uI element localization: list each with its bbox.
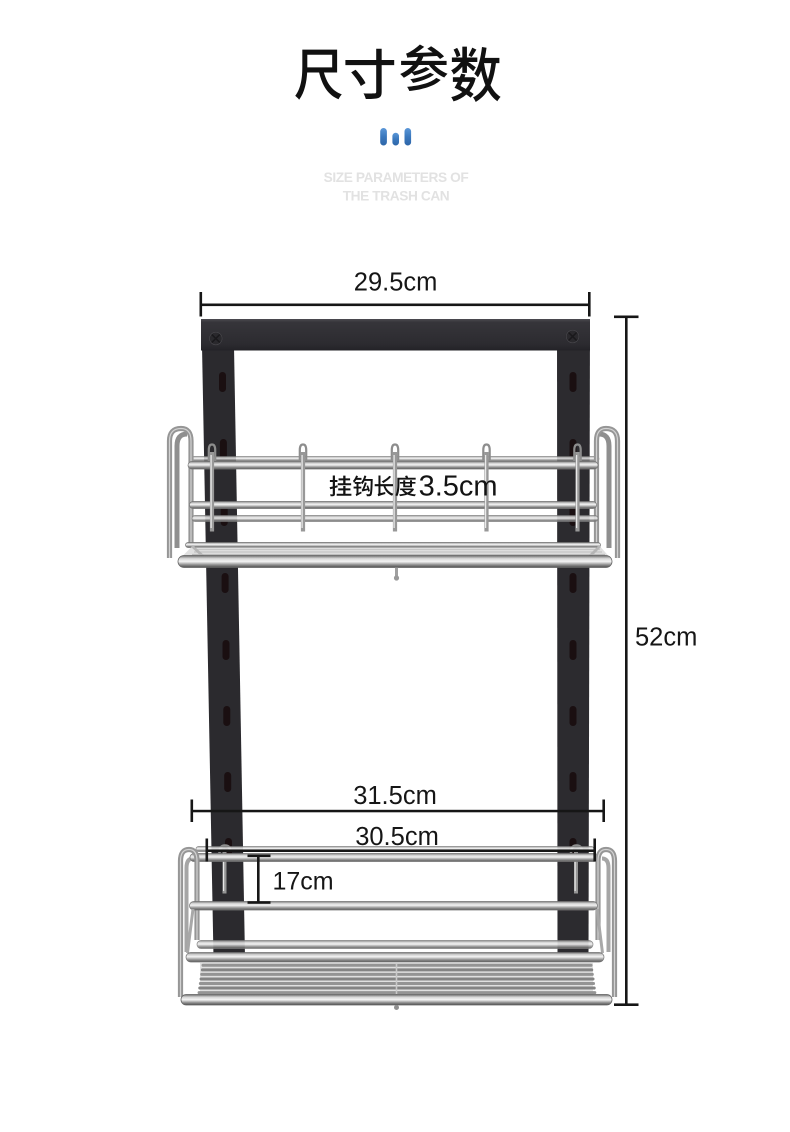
- svg-text:3.5cm: 3.5cm: [419, 471, 498, 503]
- svg-text:29.5cm: 29.5cm: [354, 269, 438, 297]
- svg-text:THE TRASH CAN: THE TRASH CAN: [343, 189, 450, 204]
- svg-text:17cm: 17cm: [273, 868, 334, 896]
- svg-text:52cm: 52cm: [635, 624, 697, 652]
- svg-text:SIZE PARAMETERS OF: SIZE PARAMETERS OF: [324, 170, 469, 185]
- svg-text:31.5cm: 31.5cm: [353, 782, 437, 810]
- svg-text:30.5cm: 30.5cm: [355, 823, 439, 851]
